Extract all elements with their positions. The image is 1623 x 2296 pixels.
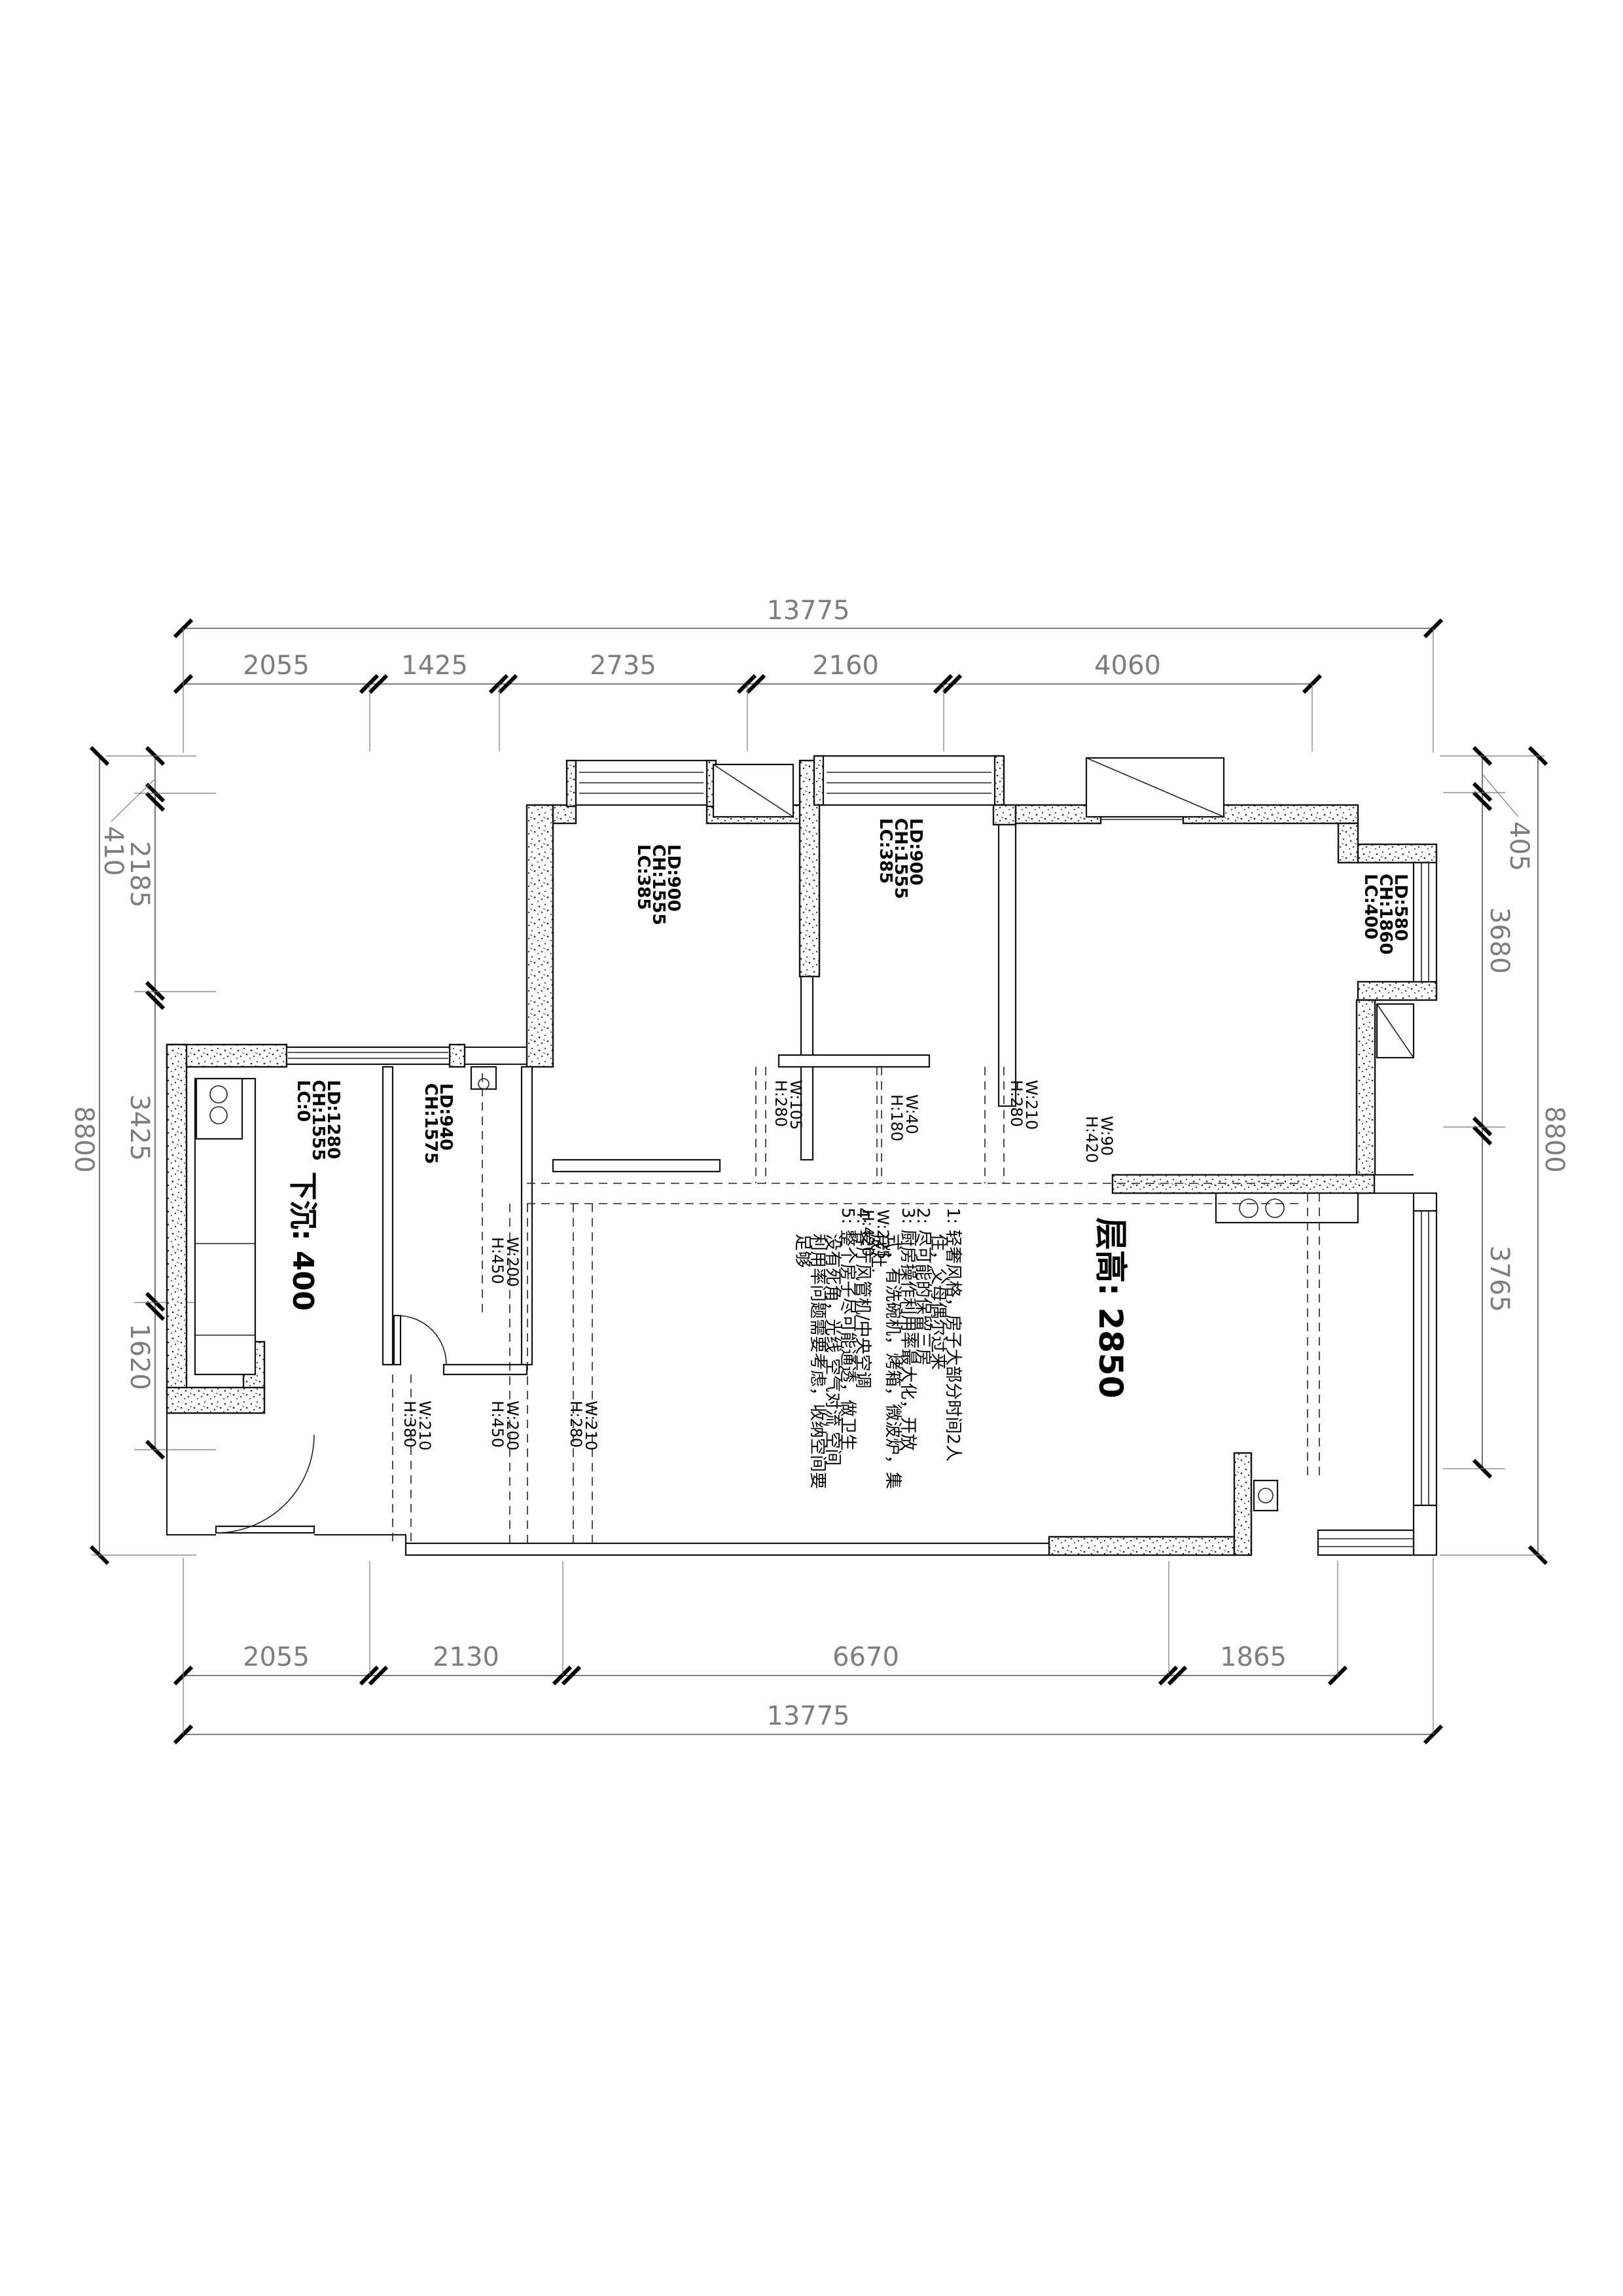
wall-study-bottom (779, 1055, 929, 1067)
dimension-right: 8800 405 3680 3765 (1440, 747, 1569, 1564)
wall-topright-corner-v (1338, 823, 1358, 863)
wall-right-bay-sill (1358, 982, 1436, 1000)
door-pivot-box-pantry (471, 1067, 496, 1089)
note-line: 利用率问题需要考虑，收纳空间要 (808, 1234, 827, 1489)
dimension-top: 13775 2055 1425 2735 2160 4060 (175, 596, 1442, 753)
dimension-bottom: 2055 2130 6670 1865 13775 (175, 1558, 1442, 1743)
dim-left-seg1: 410 (98, 826, 128, 876)
wall-pantry-bottom (444, 1365, 527, 1374)
beam-label-w: W:90 (1097, 1116, 1116, 1156)
window-balcony-right (1414, 1193, 1436, 1555)
beam-label-w: W:210 (416, 1401, 434, 1450)
ac-platform-top-right (1086, 758, 1224, 817)
dim-bottom-seg1: 2055 (243, 1642, 310, 1672)
dim-top-total: 13775 (766, 596, 849, 626)
dim-top-seg3: 2735 (590, 651, 656, 681)
dim-right-seg1: 405 (1504, 821, 1534, 871)
label-bedroom1-ld: LD:900 (664, 844, 683, 912)
beam-label-w: W:40 (902, 1094, 921, 1134)
wall-bay1-jamb-left (567, 761, 576, 806)
dim-top-seg1: 2055 (243, 651, 310, 681)
beam-label-w: W:200 (503, 1401, 522, 1450)
note-line: 足够 (793, 1234, 812, 1268)
sunken-label: 下沉: 400 (286, 1172, 319, 1311)
label-pantry-ld: LD:940 (436, 1083, 455, 1151)
dimension-left: 8800 410 2185 3425 1620 (69, 747, 216, 1564)
design-notes: 1: 轻奢风格，房子大部分时间2人 住，父母偶尔过来 2: 尽可能的保留三房 3… (793, 1208, 963, 1489)
wall-entry-corner-h (167, 1388, 264, 1413)
window-balcony-bottom (1318, 1530, 1414, 1555)
wall-study-corner (993, 805, 1016, 825)
pantry-door (394, 1316, 446, 1365)
dim-top-seg4: 2160 (812, 651, 879, 681)
wall-living-bottom (1049, 1537, 1234, 1555)
wall-bedroom1-bottom (553, 1160, 720, 1172)
beam-label-w: W:210 (582, 1401, 600, 1450)
wall-bedroom1-right-lower (801, 977, 813, 1160)
dim-bottom-total: 13775 (766, 1701, 849, 1731)
window-labels: LC:385 CH:1555 LD:900 LC:385 CH:1555 LD:… (293, 818, 1410, 1164)
floorplan-drawing: 13775 2055 1425 2735 2160 4060 (0, 0, 1623, 2296)
floor-height-label: 层高: 2850 (1092, 1217, 1130, 1399)
dim-right-total: 8800 (1539, 1106, 1569, 1173)
dim-top-seg2: 1425 (401, 651, 468, 681)
wall-bedroom2-bottom (1113, 1175, 1374, 1193)
window-bedroom2-right-bay (1414, 863, 1436, 982)
drawing-sheet: 13775 2055 1425 2735 2160 4060 (0, 0, 1623, 2296)
kitchen-counter (195, 1079, 255, 1374)
ac-platform-right (1377, 1004, 1414, 1058)
dim-left-seg3: 3425 (124, 1094, 154, 1161)
dim-bottom-seg4: 1865 (1220, 1642, 1287, 1672)
entry-door (216, 1435, 314, 1533)
wall-kitchen-right (383, 1067, 393, 1365)
wall-topright-corner-h (1358, 844, 1436, 863)
wall-bedroom1-left (527, 805, 553, 1067)
wall-kitchen-left (167, 1045, 187, 1394)
dim-left-total: 8800 (69, 1106, 99, 1173)
wall-pantry-right (522, 1067, 532, 1365)
wall-living-bottom-return (1234, 1453, 1251, 1555)
label-bedroom2-ld: LD:580 (1391, 874, 1410, 941)
windows-glazing (287, 756, 1436, 1555)
beam-label-w: W:210 (1022, 1080, 1041, 1130)
stove-counter (1216, 1193, 1358, 1223)
dim-right-seg2: 3680 (1484, 907, 1514, 974)
dim-top-seg5: 4060 (1094, 651, 1161, 681)
door-pivot-box-balcony (1254, 1480, 1277, 1511)
label-kitchen-ld: LD:1280 (323, 1080, 343, 1159)
wall-bedroom1-top-a (553, 805, 576, 823)
dim-right-seg3: 3765 (1484, 1246, 1514, 1312)
wall-living-bottom-thin (406, 1543, 1049, 1555)
beam-label-w: W:200 (503, 1237, 522, 1287)
ac-platform-top-left (713, 764, 793, 817)
wall-bedroom2-right (1357, 1000, 1375, 1175)
window-kitchen-top (287, 1047, 450, 1064)
sink-icon (196, 1079, 242, 1139)
bay-window-bedroom1 (576, 761, 707, 805)
beam-label-w: W:105 (787, 1080, 805, 1130)
dim-left-seg4: 1620 (124, 1323, 154, 1390)
label-study-ld: LD:900 (906, 818, 925, 886)
wall-study-bedroom2-divider (999, 825, 1016, 1106)
dim-bottom-seg2: 2130 (433, 1642, 499, 1672)
dim-left-seg2: 2185 (124, 841, 154, 908)
dim-bottom-seg3: 6670 (832, 1642, 899, 1672)
beam-labels: H:280 W:105 H:180 W:40 H:280 W:210 H:420… (401, 1080, 1116, 1450)
wall-kitchen-top-b (450, 1045, 465, 1067)
bay-window-study (823, 756, 995, 805)
